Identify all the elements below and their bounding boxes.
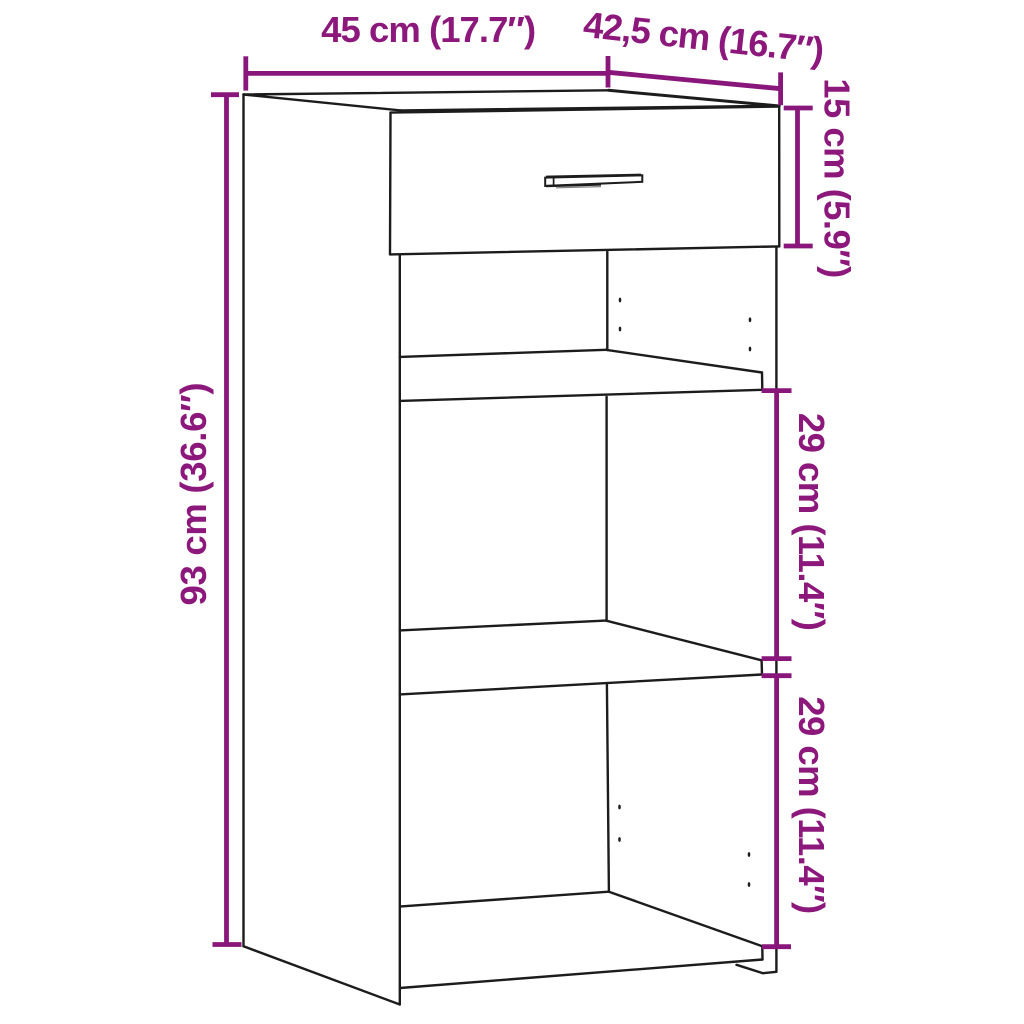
svg-text:45 cm (17.7″): 45 cm (17.7″) bbox=[321, 9, 536, 50]
svg-text:29 cm (11.4″): 29 cm (11.4″) bbox=[791, 413, 832, 631]
svg-text:29 cm (11.4″): 29 cm (11.4″) bbox=[791, 696, 832, 914]
svg-text:15 cm (5.9″): 15 cm (5.9″) bbox=[816, 78, 857, 278]
svg-text:93 cm (36.6″): 93 cm (36.6″) bbox=[173, 383, 214, 606]
